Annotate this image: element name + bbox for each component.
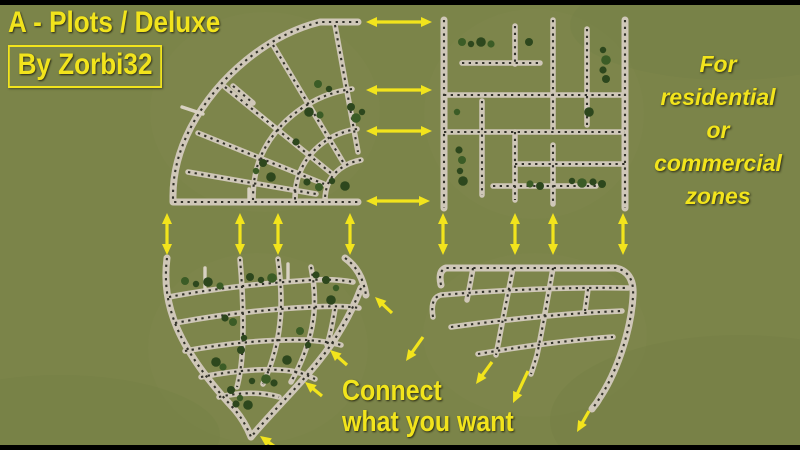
connect-caption-line: Connect: [342, 376, 514, 407]
tree: [219, 363, 226, 370]
mod-thumbnail: A - Plots / Deluxe By Zorbi32 For reside…: [0, 0, 800, 450]
tree: [304, 107, 314, 117]
tree: [296, 327, 304, 335]
tree: [282, 355, 292, 365]
tree: [243, 400, 253, 410]
tree: [237, 395, 243, 401]
tree: [458, 156, 466, 164]
tree: [246, 273, 254, 281]
tree: [322, 276, 330, 284]
tree: [600, 47, 606, 53]
tree: [253, 168, 259, 174]
tree: [599, 66, 606, 73]
connect-caption: Connect what you want: [342, 376, 514, 438]
zones-note-line: zones: [640, 180, 796, 213]
author-badge-text: By Zorbi32: [18, 48, 153, 81]
tree: [468, 41, 474, 47]
tree: [241, 335, 247, 341]
tree: [340, 181, 350, 191]
tree: [211, 357, 221, 367]
tree: [249, 378, 255, 384]
zones-note-line: residential: [640, 81, 796, 114]
tree: [292, 138, 299, 145]
author-badge: By Zorbi32: [8, 45, 162, 88]
zones-note-line: commercial: [640, 147, 796, 180]
tree: [476, 37, 486, 47]
tree: [221, 314, 228, 321]
tree: [326, 86, 332, 92]
tree: [232, 400, 239, 407]
letterbox-top: [0, 0, 800, 5]
tree: [258, 277, 264, 283]
tree: [267, 273, 277, 283]
tree: [598, 180, 606, 188]
tree: [303, 178, 310, 185]
tree: [359, 109, 365, 115]
zones-note-line: or: [640, 114, 796, 147]
tree: [347, 103, 355, 111]
tree: [589, 178, 596, 185]
tree: [526, 180, 533, 187]
zones-note-line: For: [640, 48, 796, 81]
tree: [314, 80, 322, 88]
tree: [229, 318, 237, 326]
tree: [305, 342, 311, 348]
tree: [569, 178, 575, 184]
tree: [315, 183, 323, 191]
tree: [601, 55, 611, 65]
letterbox-bottom: [0, 445, 800, 450]
tree: [457, 168, 463, 174]
zones-note: For residential or commercial zones: [640, 48, 796, 213]
tree: [577, 178, 587, 188]
tree: [312, 271, 319, 278]
tree: [237, 346, 245, 354]
tree: [266, 172, 276, 182]
tree: [584, 107, 594, 117]
tree: [525, 38, 533, 46]
tree: [326, 295, 336, 305]
tree: [455, 146, 462, 153]
tree: [487, 40, 494, 47]
tree: [458, 176, 468, 186]
tree: [181, 277, 189, 285]
tree: [270, 379, 277, 386]
road-segment: [585, 289, 588, 311]
tree: [227, 386, 235, 394]
tree: [333, 285, 339, 291]
tree: [454, 109, 460, 115]
tree: [216, 282, 223, 289]
tree: [316, 111, 323, 118]
tree: [602, 75, 610, 83]
tree: [351, 113, 361, 123]
tree: [261, 374, 271, 384]
page-title: A - Plots / Deluxe: [8, 6, 220, 40]
tree: [329, 178, 335, 184]
tree: [259, 159, 267, 167]
tree: [536, 182, 544, 190]
connect-caption-line: what you want: [342, 407, 514, 438]
tree: [458, 38, 466, 46]
tree: [193, 281, 199, 287]
tree: [203, 277, 213, 287]
